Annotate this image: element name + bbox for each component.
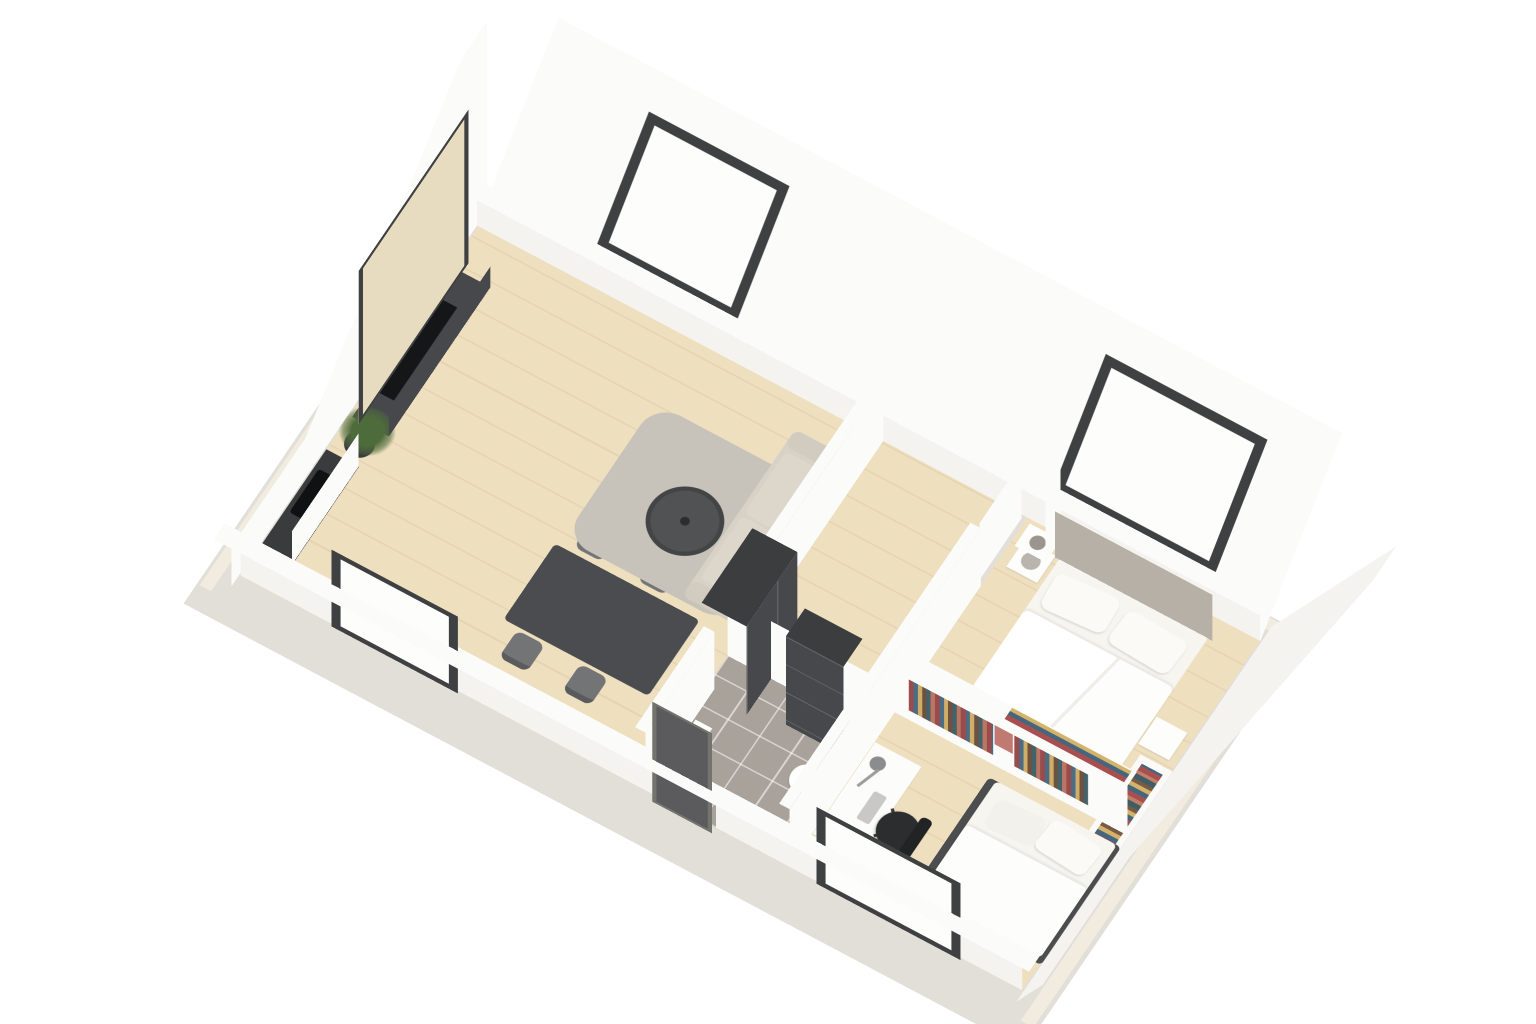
- apartment-plan: [214, 205, 1285, 1013]
- bookshelf-red-box: [995, 725, 1013, 754]
- floorplan-render-canvas: [0, 0, 1536, 1024]
- desk-lamp-arm: [856, 769, 879, 787]
- coffee-table-bowl: [678, 515, 692, 527]
